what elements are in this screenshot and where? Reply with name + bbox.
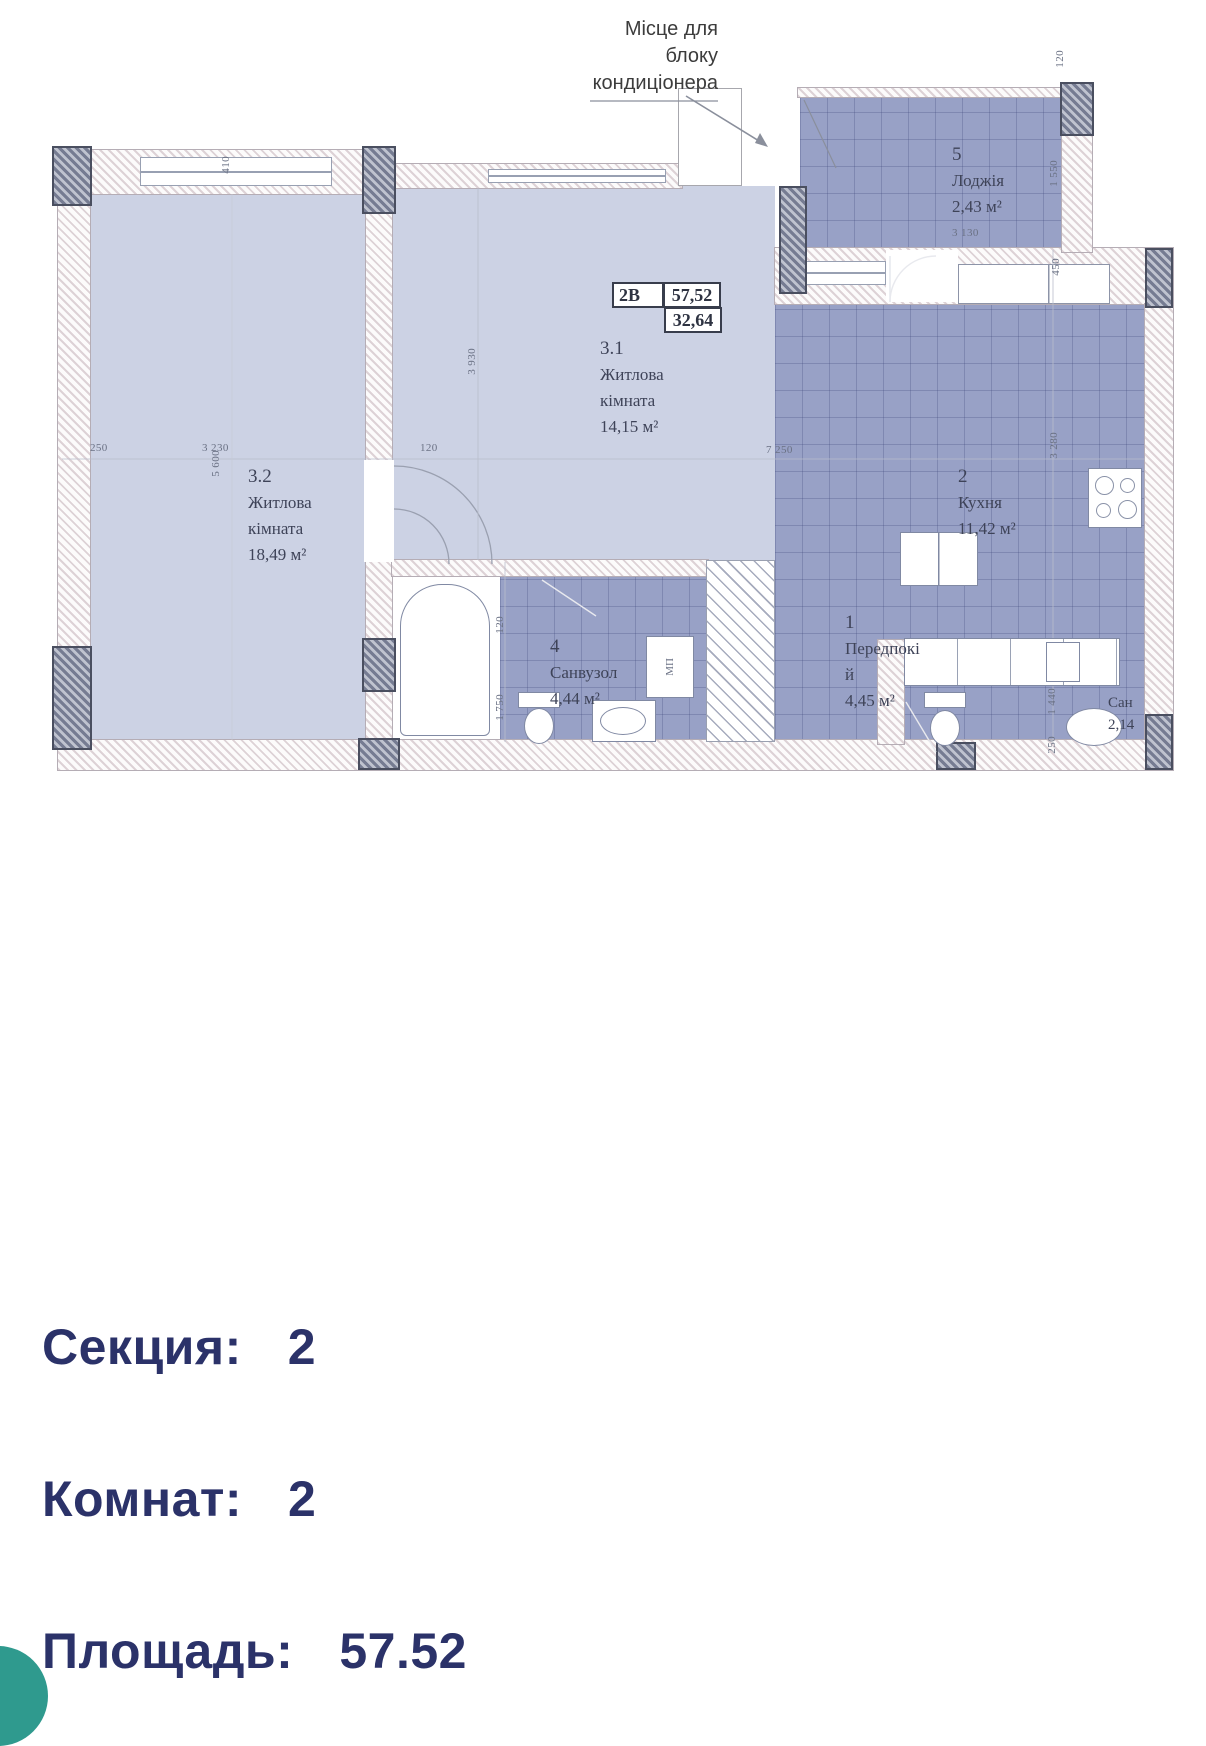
dim-120-top-right: 120 xyxy=(1054,50,1066,68)
floor-plan: МП Місце для блоку кондиціонера 2В 57,52… xyxy=(0,0,1206,800)
room-number: 3.2 xyxy=(248,464,344,490)
section-value: 2 xyxy=(288,1318,316,1376)
room-area: 18,49 м² xyxy=(248,542,344,568)
room-number: 2 xyxy=(958,464,1054,490)
room-area: 4,45 м² xyxy=(845,688,921,714)
room-name: Житлова кімната xyxy=(248,490,344,542)
stove-burner xyxy=(1118,500,1137,519)
stove-burner xyxy=(1095,476,1114,495)
room-label-living2: 3.2 Житлова кімната 18,49 м² xyxy=(248,464,344,568)
room-name: Санвузол xyxy=(550,660,646,686)
wc-toilet-bowl xyxy=(930,710,960,746)
room-number: 5 xyxy=(952,142,1062,168)
toilet-bowl xyxy=(524,708,554,744)
room-name: Сан xyxy=(1108,692,1168,714)
room-name: Кухня xyxy=(958,490,1054,516)
kitchen-sink xyxy=(1046,642,1080,682)
mp-label: МП xyxy=(664,658,676,676)
wc-toilet-tank xyxy=(924,692,966,708)
dim-3930: 3 930 xyxy=(466,348,478,375)
room-area: 14,15 м² xyxy=(600,414,696,440)
room-name: Житлова кімната xyxy=(600,362,696,414)
unit-area-total: 57,52 xyxy=(663,282,721,308)
area-row: Площадь: 57.52 xyxy=(42,1622,467,1680)
ac-note: Місце для блоку кондиціонера xyxy=(586,16,718,97)
room-name: Лоджія xyxy=(952,168,1062,194)
room-area: 11,42 м² xyxy=(958,516,1054,542)
room-number: 4 xyxy=(550,634,646,660)
room-area: 2,43 м² xyxy=(952,194,1062,220)
room-number: 1 xyxy=(845,610,921,636)
area-label: Площадь: xyxy=(42,1622,293,1680)
dim-1750: 1 750 xyxy=(494,694,506,721)
dim-3280: 3 280 xyxy=(1048,432,1060,459)
mp-window-box: МП xyxy=(646,636,694,698)
chat-fab[interactable] xyxy=(0,1646,48,1746)
room-name: Передпокій xyxy=(845,636,921,688)
kitchen-counter xyxy=(904,638,1120,686)
rooms-value: 2 xyxy=(288,1470,316,1528)
rooms-row: Комнат: 2 xyxy=(42,1470,316,1528)
room-label-living1: 3.1 Житлова кімната 14,15 м² xyxy=(600,336,696,440)
dim-450: 450 xyxy=(1050,258,1062,276)
stove-burner xyxy=(1096,503,1111,518)
unit-area-living: 32,64 xyxy=(664,307,722,333)
dim-loggia-width: 3 130 xyxy=(952,220,1062,246)
dim-250-right: 250 xyxy=(1046,736,1058,754)
room-number: 3.1 xyxy=(600,336,696,362)
section-label: Секция: xyxy=(42,1318,242,1376)
dim-250-left: 250 xyxy=(90,442,108,454)
stove xyxy=(1088,468,1142,528)
room-label-wc: Сан 2,14 xyxy=(1108,692,1168,736)
dim-1440: 1 440 xyxy=(1046,688,1058,715)
unit-box-spacer xyxy=(613,308,665,334)
room-area: 4,44 м² xyxy=(550,686,646,712)
dim-5600: 5 600 xyxy=(210,450,222,477)
stove-burner xyxy=(1120,478,1135,493)
area-value: 57.52 xyxy=(339,1622,467,1680)
room-area: 2,14 xyxy=(1108,714,1168,736)
room-label-bathroom: 4 Санвузол 4,44 м² xyxy=(550,634,646,712)
rooms-label: Комнат: xyxy=(42,1470,242,1528)
dim-120-mid: 120 xyxy=(420,442,438,454)
section-row: Секция: 2 xyxy=(42,1318,316,1376)
bathtub xyxy=(400,584,490,736)
unit-info-box: 2В 57,52 32,64 xyxy=(613,283,722,334)
room-label-kitchen: 2 Кухня 11,42 м² xyxy=(958,464,1054,542)
room-label-hall: 1 Передпокій 4,45 м² xyxy=(845,610,921,714)
room-label-loggia: 5 Лоджія 2,43 м² 3 130 xyxy=(952,142,1062,246)
dim-3230: 3 230 xyxy=(202,442,229,454)
dim-410: 410 xyxy=(220,156,232,174)
unit-code: 2В xyxy=(612,282,664,308)
dim-7250: 7 250 xyxy=(766,444,793,456)
dim-120-bath: 120 xyxy=(494,616,506,634)
dim-1550: 1 550 xyxy=(1048,160,1060,187)
